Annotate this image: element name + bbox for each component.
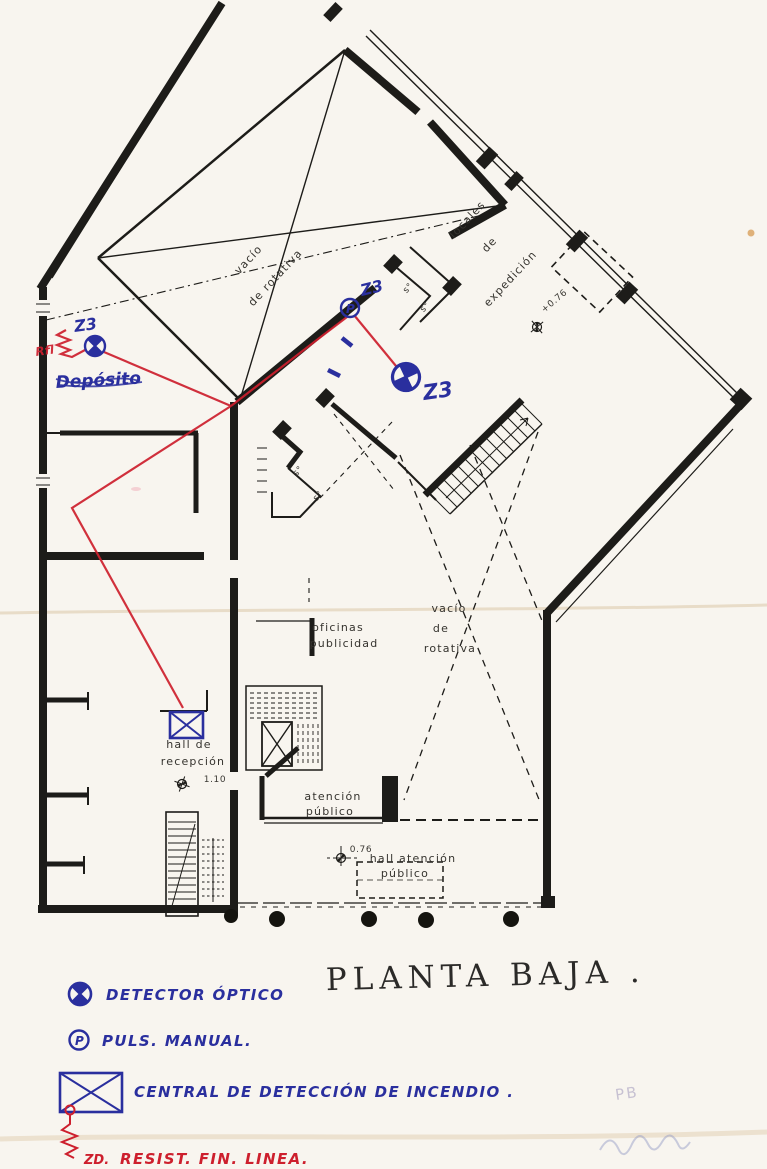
label-lower-void-3: rotativa: [424, 642, 476, 655]
legend-eol-resistor-icon: [62, 1106, 77, 1159]
legend-pushbutton-icon: P: [70, 1031, 89, 1050]
page-title: PLANTA BAJA .: [325, 954, 646, 998]
label-lower-void-2: de: [433, 622, 449, 635]
wall-pier: [382, 776, 398, 822]
floorplan-canvas: vacío de rotativa locales de expedición …: [0, 0, 767, 1169]
legend-detector-label: DETECTOR ÓPTICO: [106, 985, 284, 1004]
label-level-recepcion: 1.10: [204, 775, 226, 785]
legend-eol-label: RESIST. FIN. LINEA.: [120, 1150, 309, 1168]
rfl-annotation: Rfl: [34, 342, 55, 359]
facade-northeast: [323, 2, 752, 622]
label-small-room-1: s°: [401, 281, 415, 295]
label-locales-3: expedición: [481, 248, 539, 309]
label-locales-2: de: [479, 234, 500, 255]
zone-label-1: Z3: [72, 314, 98, 336]
optical-detector-symbol-1: [85, 336, 105, 356]
label-oficinas-1: oficinas: [312, 621, 364, 634]
label-atencion-1: atención: [304, 790, 361, 803]
legend-pushbutton-label: PULS. MANUAL.: [102, 1032, 252, 1050]
label-upper-void-1: vacío: [232, 242, 265, 277]
zone-label-2: Z3: [357, 276, 385, 300]
staircase-bottom-left: [166, 812, 224, 916]
staircase-diagonal: [425, 400, 542, 514]
label-hall-atencion-2: público: [381, 867, 429, 880]
legend-pushbutton-letter: P: [75, 1034, 84, 1048]
plan-linework: [35, 2, 752, 928]
label-hall-atencion-1: hall atención: [370, 852, 457, 865]
wire-tick-marks: [328, 338, 352, 376]
legend-detector-icon: [69, 983, 91, 1005]
facade-piers: [323, 2, 752, 410]
paper-stain: [131, 487, 141, 491]
paper-stain: [748, 230, 755, 237]
scanned-floorplan-page: vacío de rotativa locales de expedición …: [0, 0, 767, 1169]
pencil-marks: PB: [600, 1083, 690, 1154]
label-lower-void-1: vacío: [431, 602, 466, 615]
label-atencion-2: público: [306, 805, 354, 818]
zone-label-3: Z3: [420, 377, 454, 405]
fire-alarm-annotations: Z3 P Z3 Z3 Depósito: [55, 276, 454, 738]
void-dashed-cross: [400, 432, 545, 802]
columns: [224, 909, 519, 928]
control-panel-symbol: [170, 712, 203, 738]
upper-void-structure: [46, 16, 505, 400]
legend: DETECTOR ÓPTICO P PULS. MANUAL. CENTRAL …: [60, 983, 514, 1168]
label-hall-recepcion-1: hall de: [166, 738, 211, 751]
pencil-note: PB: [614, 1083, 640, 1104]
level-marker-expedicion: [526, 316, 549, 339]
level-marker-recepcion: [172, 774, 193, 795]
legend-eol-prefix: ZD.: [83, 1153, 109, 1168]
legend-panel-label: CENTRAL DE DETECCIÓN DE INCENDIO .: [134, 1082, 514, 1101]
label-small-room-3: s°: [291, 464, 305, 478]
label-hall-recepcion-2: recepción: [161, 755, 225, 768]
label-oficinas-2: publicidad: [310, 637, 379, 650]
wire-run: [354, 315, 396, 366]
pushbutton-letter: P: [346, 302, 355, 316]
label-level-expedicion: +0.76: [540, 288, 570, 315]
